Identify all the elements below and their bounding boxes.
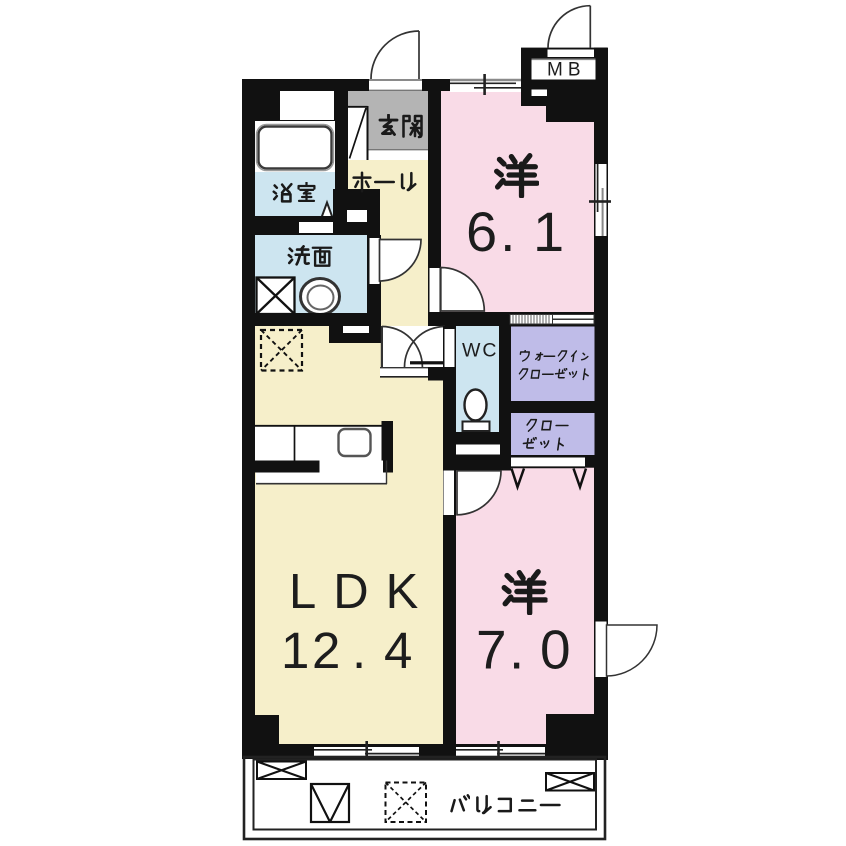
svg-text:1: 1 bbox=[533, 200, 564, 263]
svg-text:LDK: LDK bbox=[289, 565, 435, 619]
svg-text:0: 0 bbox=[540, 619, 571, 681]
svg-text:MB: MB bbox=[547, 60, 586, 81]
svg-text:WC: WC bbox=[462, 340, 499, 362]
svg-text:.: . bbox=[352, 622, 366, 679]
svg-text:.: . bbox=[500, 200, 516, 263]
svg-text:1: 1 bbox=[281, 622, 309, 679]
svg-text:2: 2 bbox=[312, 622, 340, 679]
svg-text:4: 4 bbox=[384, 622, 412, 679]
svg-text:.: . bbox=[509, 619, 524, 681]
svg-text:6: 6 bbox=[466, 200, 497, 263]
svg-text:7: 7 bbox=[476, 619, 507, 681]
